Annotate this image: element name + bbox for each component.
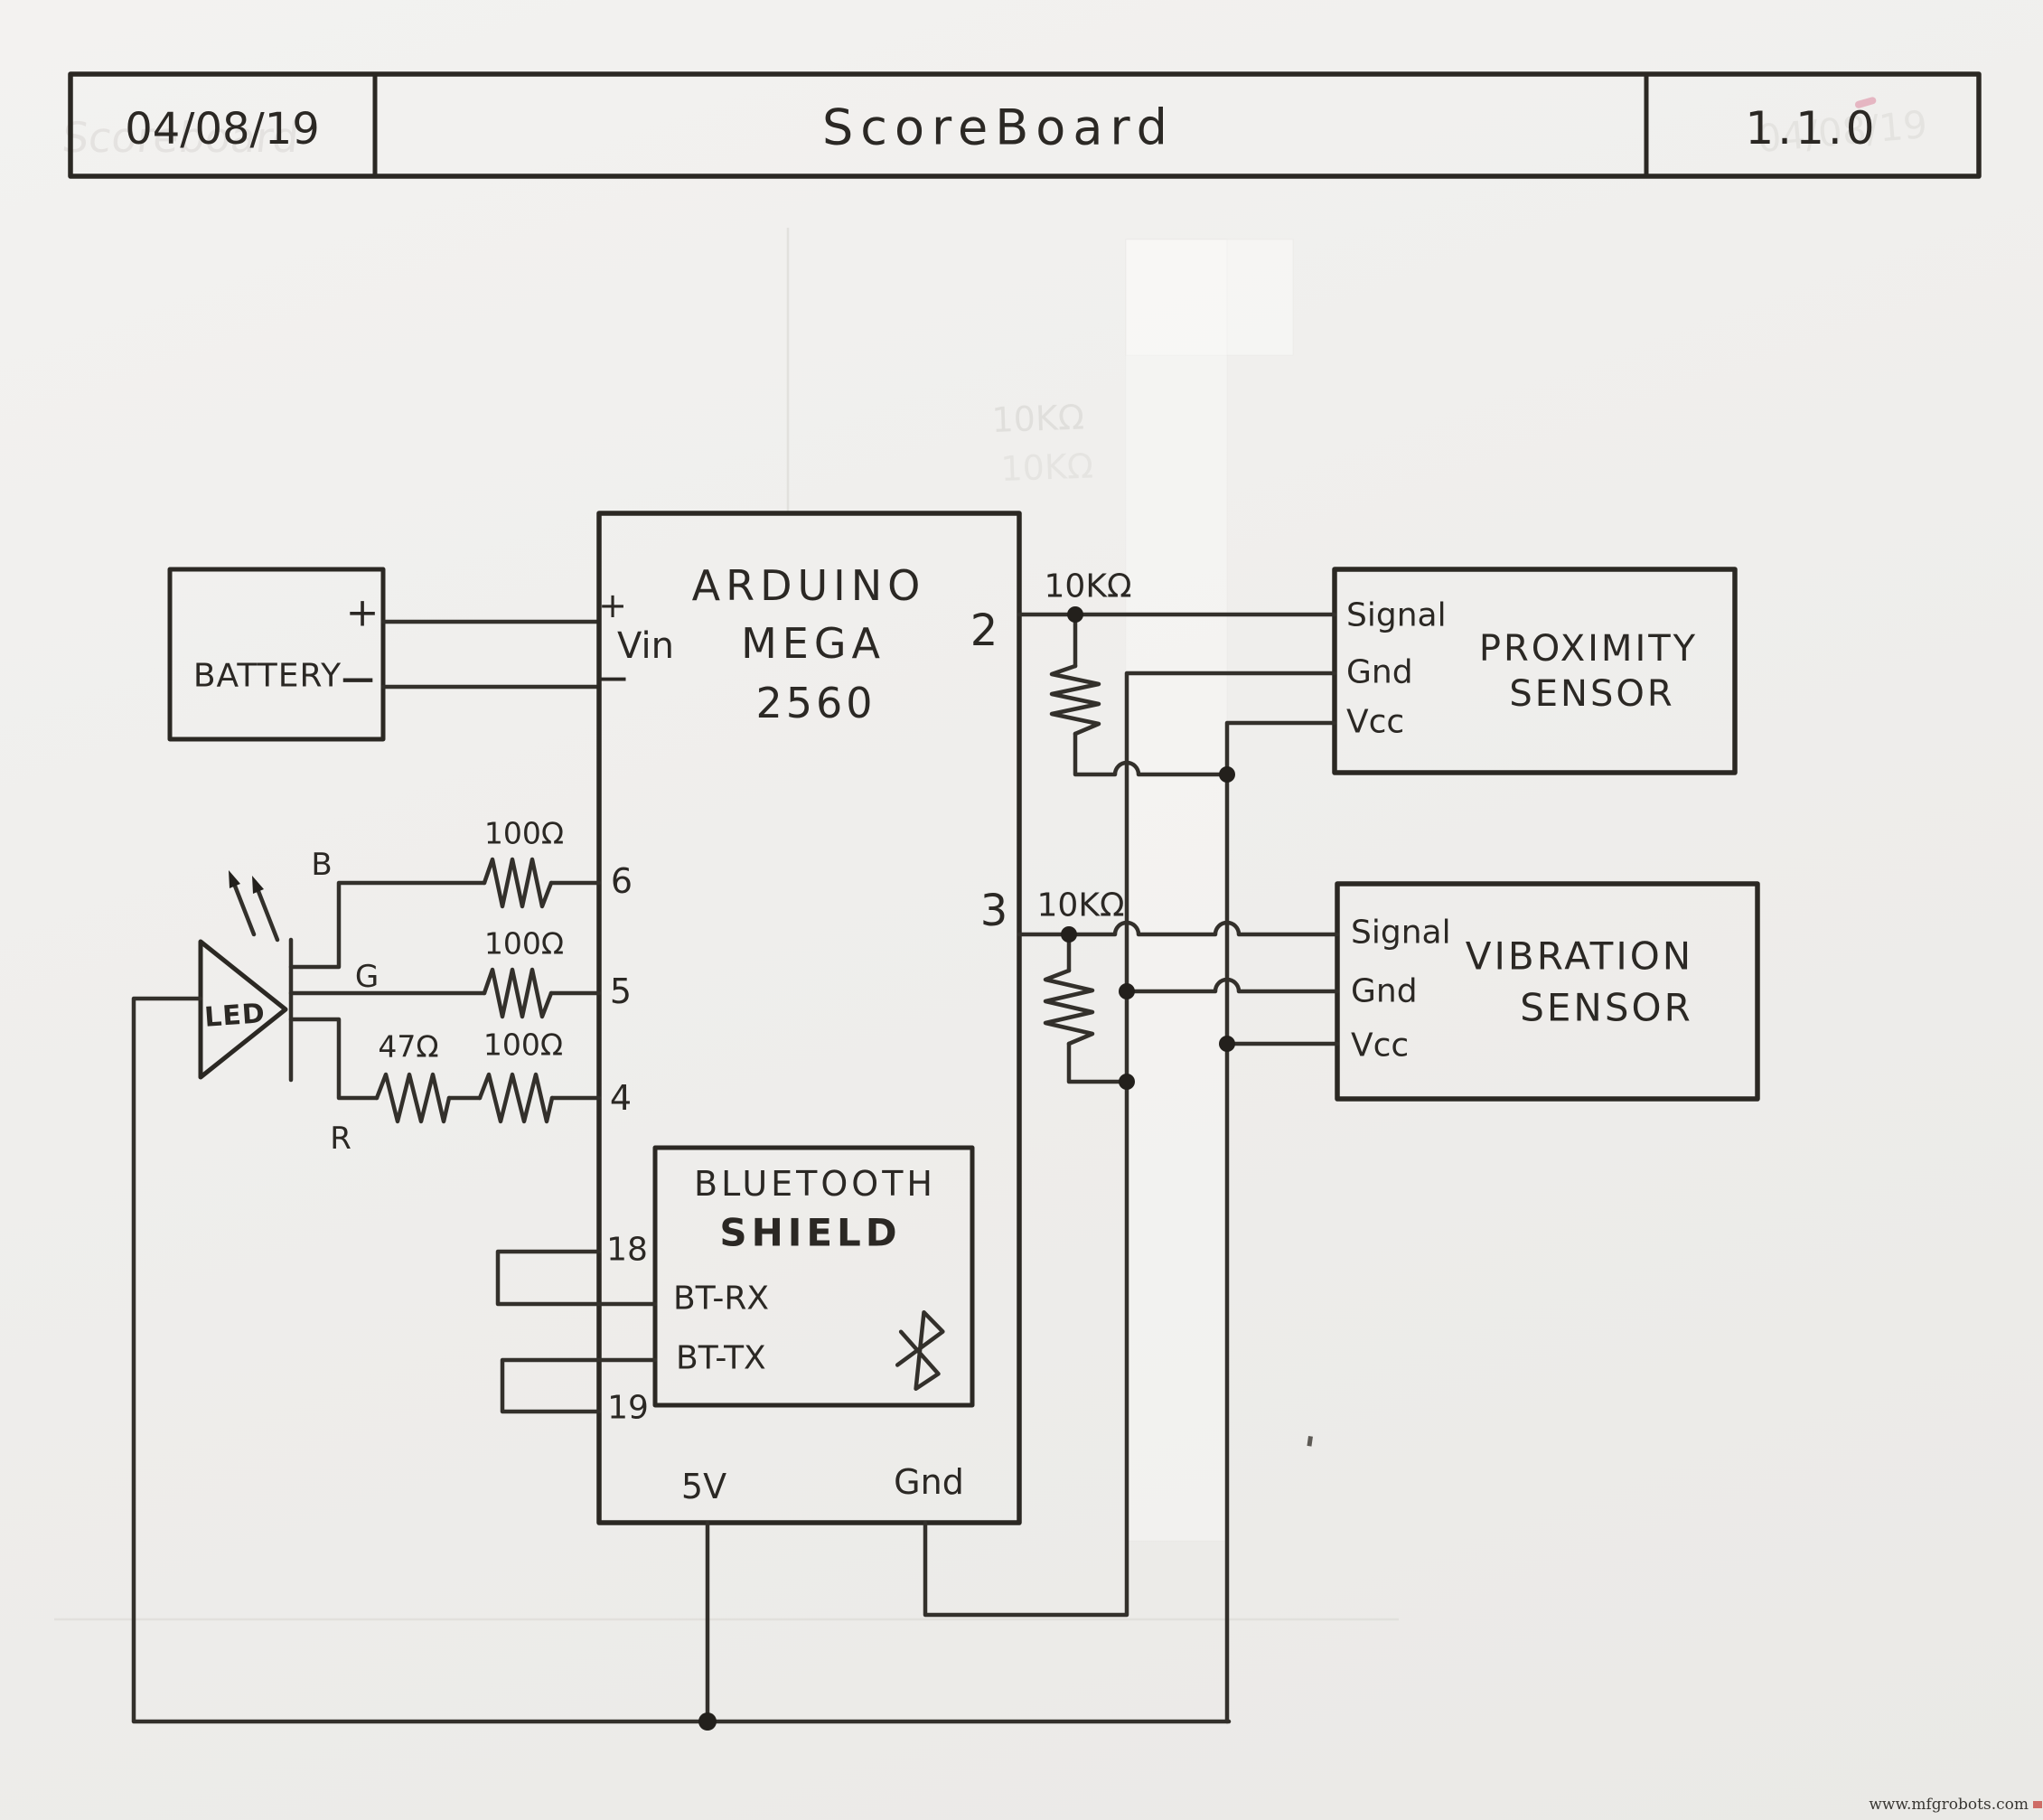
resistor-pin4-47-icon: [377, 1074, 449, 1121]
wire-led-r: [291, 1019, 377, 1098]
vibration-title-line1: VIBRATION: [1466, 934, 1693, 979]
paper-artifacts: Scoreboard 10KΩ 10KΩ 04/08/19: [54, 96, 1929, 1619]
wire-led-b: [291, 883, 484, 967]
led-pin-r-label: R: [330, 1121, 351, 1157]
vibration-pin-gnd: Gnd: [1351, 973, 1418, 1010]
junction-gnd-vibration: [1119, 983, 1135, 999]
watermark-text: www.mfgrobots.com: [1869, 1796, 2029, 1814]
proximity-pin-vcc: Vcc: [1346, 704, 1404, 741]
resistor-pin3-pulldown-label: 10KΩ: [1037, 887, 1125, 924]
resistor-pin3-pulldown-icon: [1045, 971, 1092, 1044]
resistor-pin4-100-label: 100Ω: [483, 1027, 563, 1063]
led-label: LED: [203, 998, 267, 1034]
battery-minus-sign: −: [338, 652, 378, 707]
proximity-title-line1: PROXIMITY: [1479, 628, 1698, 670]
junction-pin2: [1067, 606, 1083, 623]
resistor-pin5-icon: [484, 970, 551, 1017]
arduino-block: ARDUINO MEGA 2560 + Vin − 6 5 4 18 19 2 …: [595, 513, 1019, 1523]
arduino-pin-vin-minus: −: [595, 653, 631, 702]
arduino-pin-2: 2: [970, 605, 998, 656]
watermark-group: www.mfgrobots.com: [1869, 1796, 2042, 1814]
ghost-resistor-text-1: 10KΩ: [991, 397, 1085, 440]
junction-pin3: [1061, 926, 1077, 943]
resistor-pin6-label: 100Ω: [484, 816, 564, 851]
resistor-pin5-label: 100Ω: [484, 926, 564, 962]
arduino-pin-5: 5: [610, 971, 632, 1011]
arduino-pin-5v: 5V: [681, 1467, 726, 1506]
vibration-title-line2: SENSOR: [1520, 986, 1693, 1030]
arduino-title-line3: 2560: [755, 679, 876, 727]
junction-vcc-vibration: [1219, 1036, 1235, 1052]
arduino-pin-4: 4: [610, 1078, 632, 1118]
bluetooth-title-line2: SHIELD: [719, 1211, 901, 1255]
arduino-title-line2: MEGA: [741, 619, 886, 668]
arduino-pin-6: 6: [611, 861, 633, 901]
tape-strip: [1126, 239, 1227, 1541]
battery-label: BATTERY: [193, 658, 342, 695]
proximity-pin-gnd: Gnd: [1346, 654, 1413, 691]
vibration-pin-vcc: Vcc: [1351, 1027, 1409, 1065]
wire-pin3-resistor-bottom: [1069, 1044, 1127, 1082]
resistor-pin2-pullup-label: 10KΩ: [1045, 568, 1132, 605]
battery-block: BATTERY + −: [170, 569, 599, 739]
led-symbol: LED B G R: [201, 847, 379, 1157]
bluetooth-pin-tx: BT-TX: [676, 1340, 766, 1377]
battery-plus-sign: +: [346, 590, 380, 636]
resistor-pin4-47-label: 47Ω: [378, 1029, 438, 1065]
arduino-pin-gnd: Gnd: [894, 1462, 964, 1502]
arduino-pin-19: 19: [607, 1390, 649, 1427]
ghost-resistor-text-2: 10KΩ: [1000, 446, 1094, 489]
junction-vcc-top: [1219, 766, 1235, 783]
bluetooth-pin-rx: BT-RX: [673, 1281, 769, 1318]
resistor-pin6-icon: [484, 859, 551, 906]
junction-5v-rail: [698, 1712, 717, 1731]
vibration-sensor-block: Signal Gnd Vcc VIBRATION SENSOR: [1337, 884, 1757, 1099]
arduino-pin-18: 18: [606, 1232, 648, 1269]
led-emission-arrows-icon: [229, 870, 277, 940]
ink-speck: [1307, 1436, 1312, 1447]
title-block: 04/08/19 ScoreBoard 1.1.0: [70, 74, 1979, 176]
vibration-pin-signal: Signal: [1351, 915, 1451, 952]
bluetooth-icon: [895, 1310, 945, 1391]
scanned-schematic-page: { "title_block": { "date": "04/08/19", "…: [0, 0, 2043, 1820]
wire-vcc-net: [1227, 723, 1335, 1721]
arduino-pin-vin-plus: +: [598, 586, 627, 625]
resistor-pin2-pullup-icon: [1052, 666, 1099, 734]
version-text: 1.1.0: [1745, 102, 1878, 155]
resistor-pin4-100-icon: [480, 1074, 552, 1121]
led-pin-g-label: G: [355, 959, 379, 995]
arduino-title-line1: ARDUINO: [692, 561, 926, 610]
led-pin-b-label: B: [311, 847, 332, 883]
page-title: ScoreBoard: [822, 99, 1175, 156]
bluetooth-title-line1: BLUETOOTH: [694, 1164, 936, 1204]
bluetooth-shield-block: BLUETOOTH SHIELD BT-RX BT-TX: [655, 1148, 972, 1405]
date-text: 04/08/19: [125, 104, 320, 155]
arduino-pin-3: 3: [980, 886, 1008, 936]
proximity-pin-signal: Signal: [1346, 597, 1447, 634]
junction-pin3-resistor-gnd: [1119, 1074, 1135, 1090]
proximity-sensor-block: Signal Gnd Vcc PROXIMITY SENSOR: [1335, 569, 1735, 773]
proximity-title-line2: SENSOR: [1509, 673, 1674, 715]
schematic-drawing: Scoreboard 10KΩ 10KΩ 04/08/19 04/08/19 S…: [0, 0, 2043, 1820]
watermark-red-mark: [2033, 1801, 2042, 1808]
